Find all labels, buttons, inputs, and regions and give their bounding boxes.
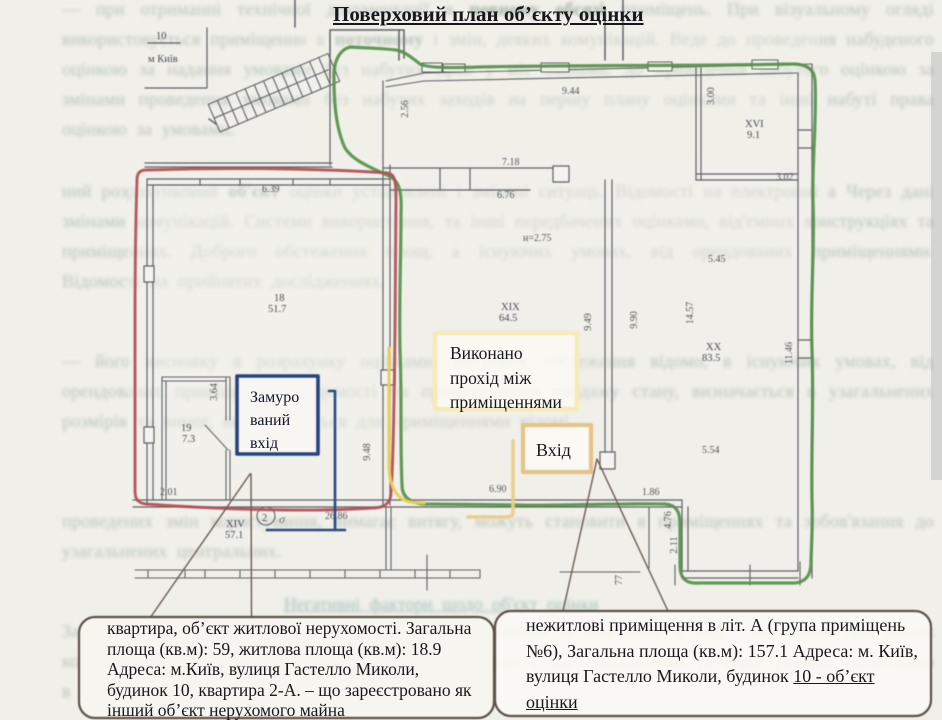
- svg-text:6.76: 6.76: [497, 190, 515, 201]
- svg-text:5.54: 5.54: [702, 445, 720, 456]
- svg-text:XIX: XIX: [501, 302, 520, 313]
- svg-text:1.86: 1.86: [642, 487, 660, 498]
- svg-text:2.56: 2.56: [400, 100, 411, 118]
- svg-text:11.46: 11.46: [784, 342, 795, 364]
- svg-text:XX: XX: [706, 342, 722, 353]
- svg-text:10: 10: [156, 31, 167, 42]
- svg-text:57.1: 57.1: [225, 530, 243, 541]
- svg-text:6.39: 6.39: [262, 184, 280, 195]
- svg-text:83.5: 83.5: [702, 353, 720, 364]
- svg-text:9.44: 9.44: [562, 86, 580, 97]
- svg-text:XIV: XIV: [226, 519, 245, 530]
- svg-text:14.57: 14.57: [685, 302, 696, 325]
- svg-text:3.00: 3.00: [706, 87, 717, 105]
- svg-text:9.1: 9.1: [747, 130, 760, 141]
- svg-text:6.90: 6.90: [489, 484, 507, 495]
- svg-text:7.18: 7.18: [502, 157, 520, 168]
- svg-text:19: 19: [181, 423, 192, 434]
- svg-text:9.49: 9.49: [583, 313, 594, 331]
- svg-text:м Київ: м Київ: [148, 54, 178, 65]
- svg-text:XVI: XVI: [745, 119, 764, 130]
- svg-text:64.5: 64.5: [499, 313, 517, 324]
- svg-text:н=2.75: н=2.75: [523, 233, 552, 244]
- svg-text:9.90: 9.90: [629, 311, 640, 329]
- svg-text:2.11: 2.11: [669, 536, 680, 553]
- svg-text:3.64: 3.64: [209, 383, 220, 401]
- svg-text:18: 18: [274, 293, 285, 304]
- svg-text:51.7: 51.7: [268, 304, 286, 315]
- svg-text:77: 77: [614, 575, 625, 585]
- svg-text:7.3: 7.3: [182, 434, 195, 445]
- svg-text:2: 2: [262, 513, 267, 524]
- svg-text:9.48: 9.48: [362, 443, 373, 461]
- svg-text:σ: σ: [279, 512, 286, 526]
- svg-text:2.01: 2.01: [160, 487, 178, 498]
- svg-text:5.45: 5.45: [708, 254, 726, 265]
- svg-text:4.76: 4.76: [663, 511, 674, 529]
- svg-text:3.02: 3.02: [776, 172, 794, 183]
